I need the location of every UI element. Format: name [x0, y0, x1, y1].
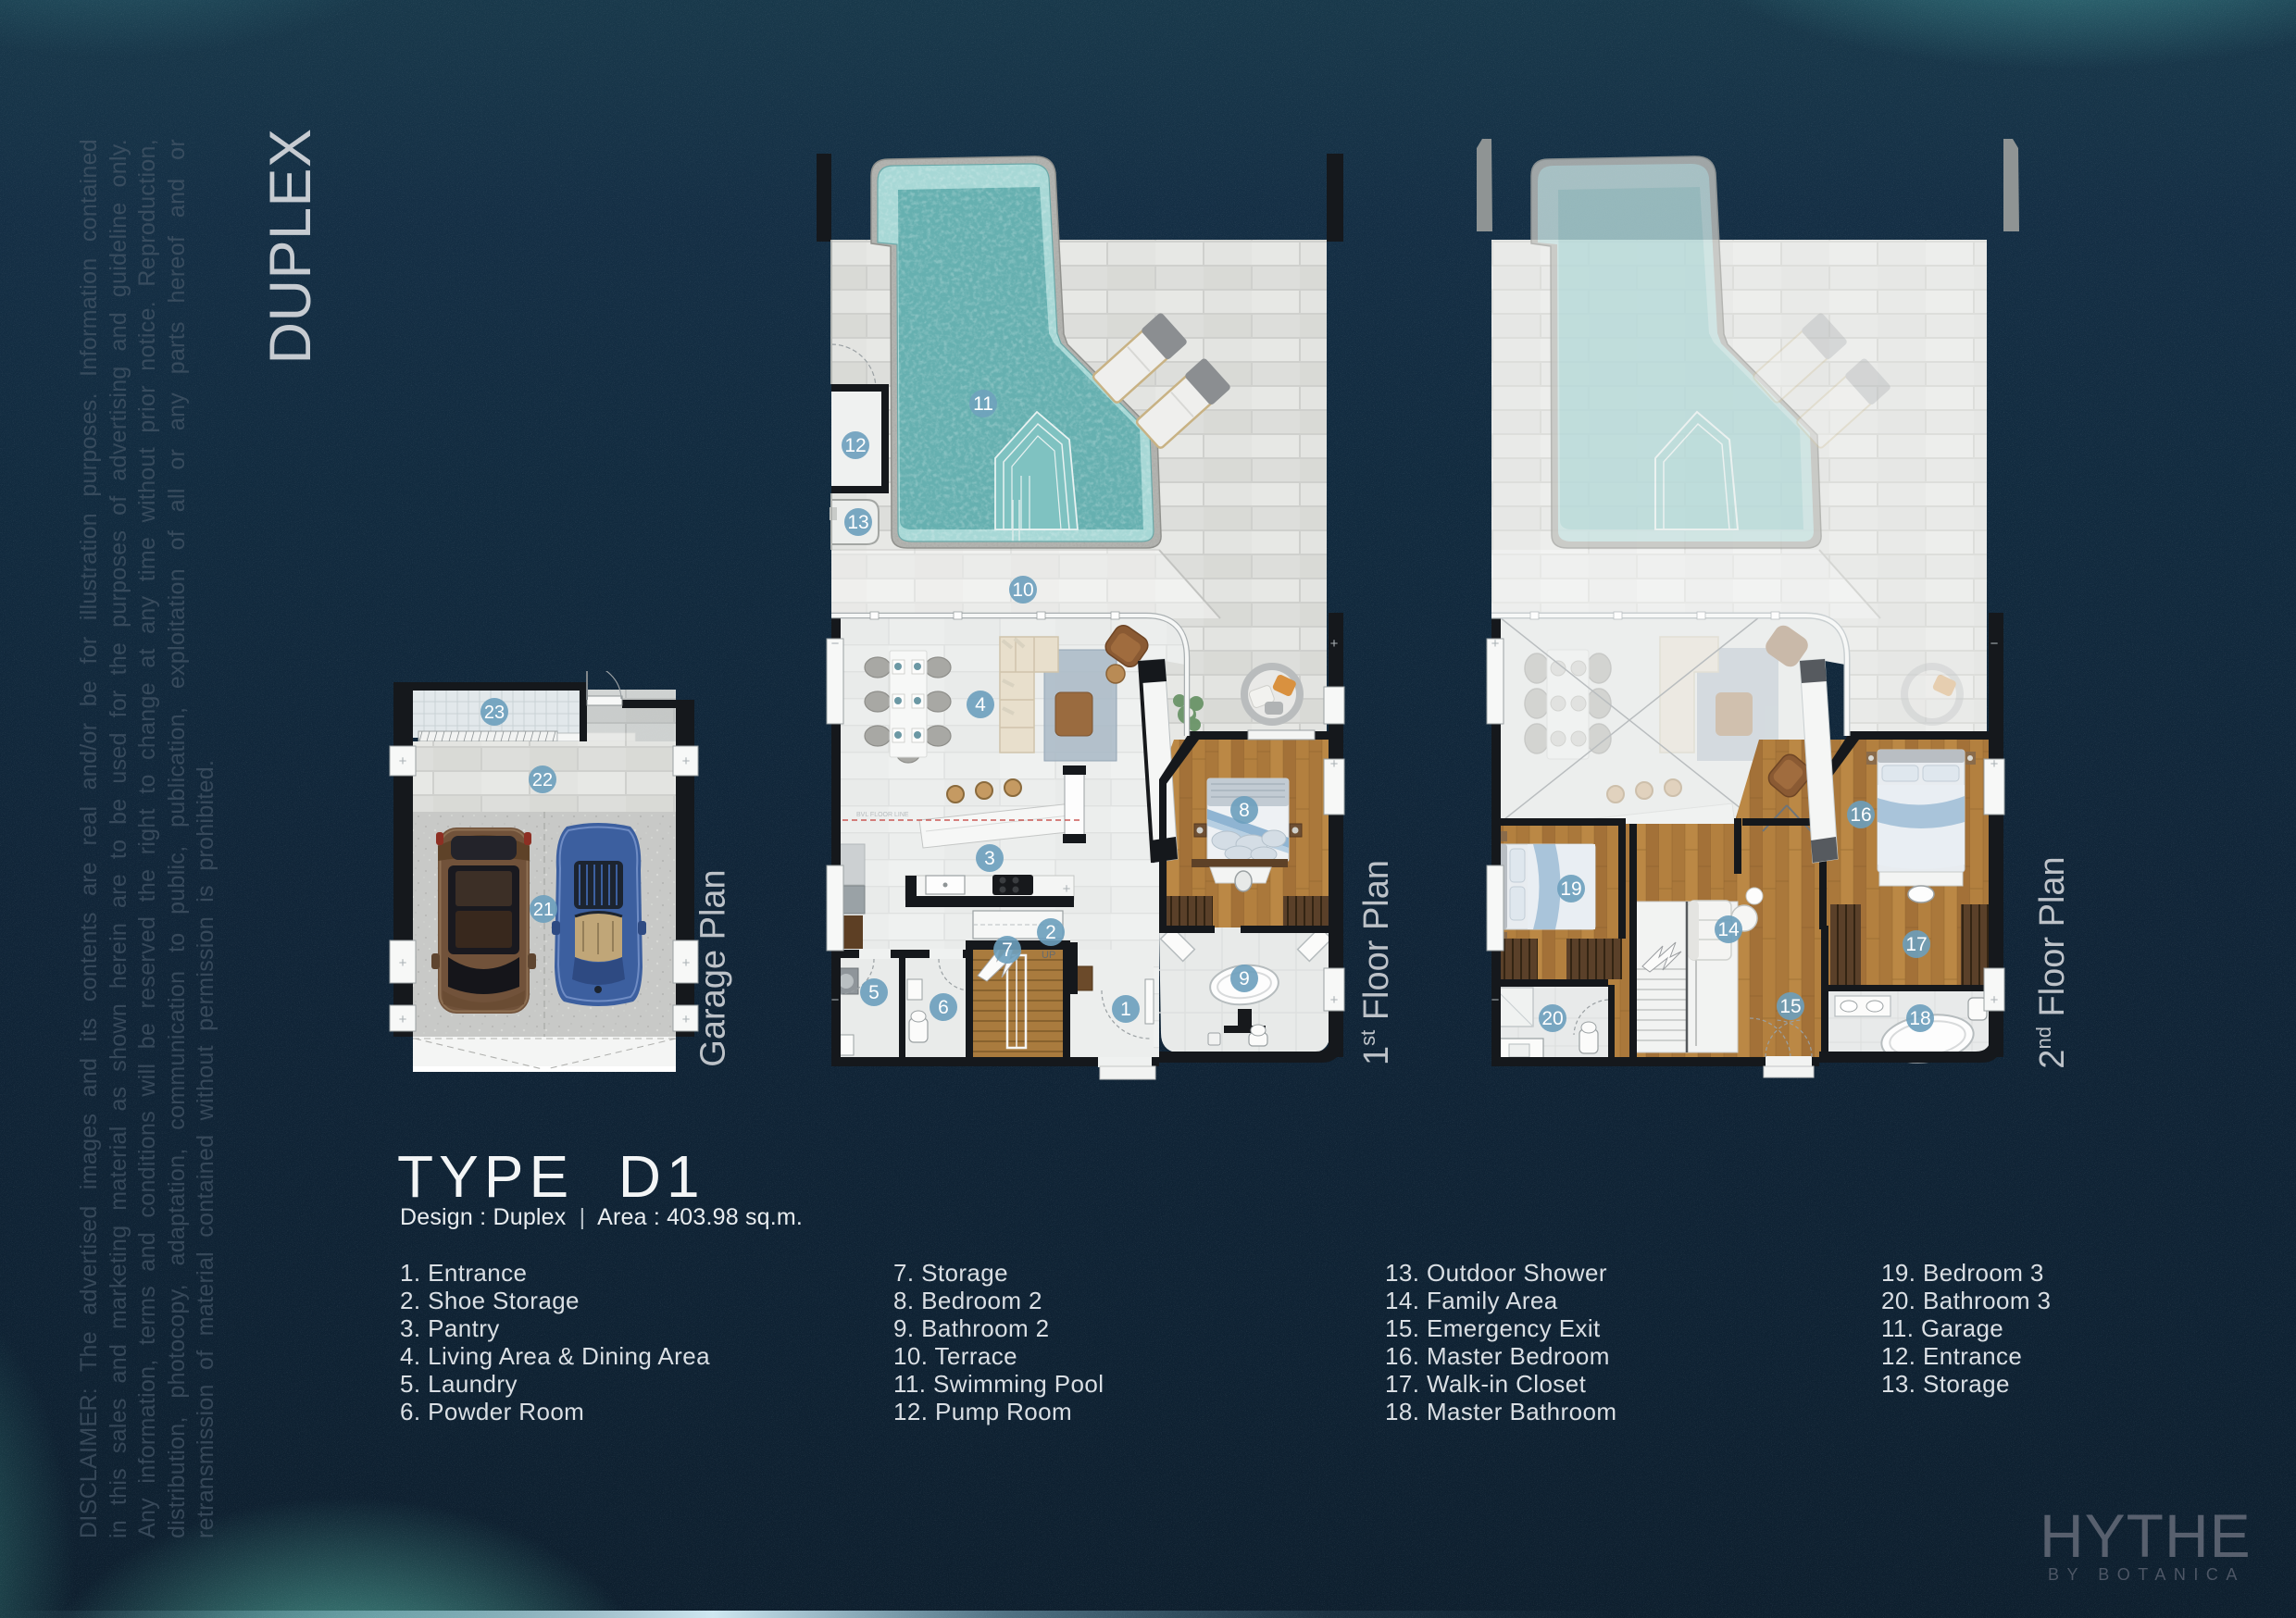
svg-text:−: −	[831, 636, 840, 652]
svg-text:+: +	[1330, 636, 1339, 652]
svg-text:+: +	[1990, 756, 1999, 772]
svg-text:+: +	[682, 955, 691, 971]
svg-text:+: +	[682, 753, 691, 769]
svg-text:4: 4	[975, 694, 986, 716]
svg-text:11: 11	[973, 393, 993, 415]
svg-text:18: 18	[1909, 1008, 1930, 1029]
svg-text:+: +	[1491, 636, 1500, 652]
svg-text:+: +	[399, 753, 407, 769]
svg-text:19: 19	[1560, 878, 1581, 900]
svg-text:9: 9	[1239, 968, 1250, 989]
svg-text:+: +	[1330, 756, 1339, 772]
svg-text:+: +	[1063, 881, 1071, 897]
svg-text:+: +	[1990, 992, 1999, 1008]
svg-text:−: −	[831, 992, 840, 1008]
svg-text:21: 21	[533, 900, 554, 920]
svg-text:+: +	[682, 1012, 691, 1027]
svg-text:−: −	[1990, 636, 1999, 652]
svg-text:17: 17	[1905, 934, 1927, 955]
svg-text:−: −	[1491, 992, 1500, 1008]
svg-text:15: 15	[1779, 996, 1801, 1017]
svg-text:23: 23	[484, 703, 505, 723]
svg-text:UP: UP	[1042, 950, 1055, 961]
svg-text:13: 13	[847, 512, 868, 533]
svg-text:12: 12	[844, 435, 866, 456]
svg-text:3: 3	[984, 848, 995, 869]
svg-text:22: 22	[532, 770, 553, 790]
svg-text:6: 6	[938, 997, 949, 1018]
svg-text:7: 7	[1002, 940, 1013, 961]
svg-text:1: 1	[1120, 999, 1131, 1020]
svg-text:16: 16	[1850, 804, 1871, 826]
svg-text:BVL FLOOR LINE: BVL FLOOR LINE	[856, 812, 909, 818]
svg-text:+: +	[399, 1012, 407, 1027]
svg-text:+: +	[399, 955, 407, 971]
svg-text:5: 5	[868, 982, 880, 1003]
svg-text:2: 2	[1045, 922, 1056, 943]
svg-text:20: 20	[1541, 1008, 1563, 1029]
svg-text:8: 8	[1239, 800, 1250, 821]
svg-text:10: 10	[1012, 579, 1033, 601]
svg-text:+: +	[1330, 992, 1339, 1008]
svg-text:14: 14	[1717, 919, 1740, 940]
